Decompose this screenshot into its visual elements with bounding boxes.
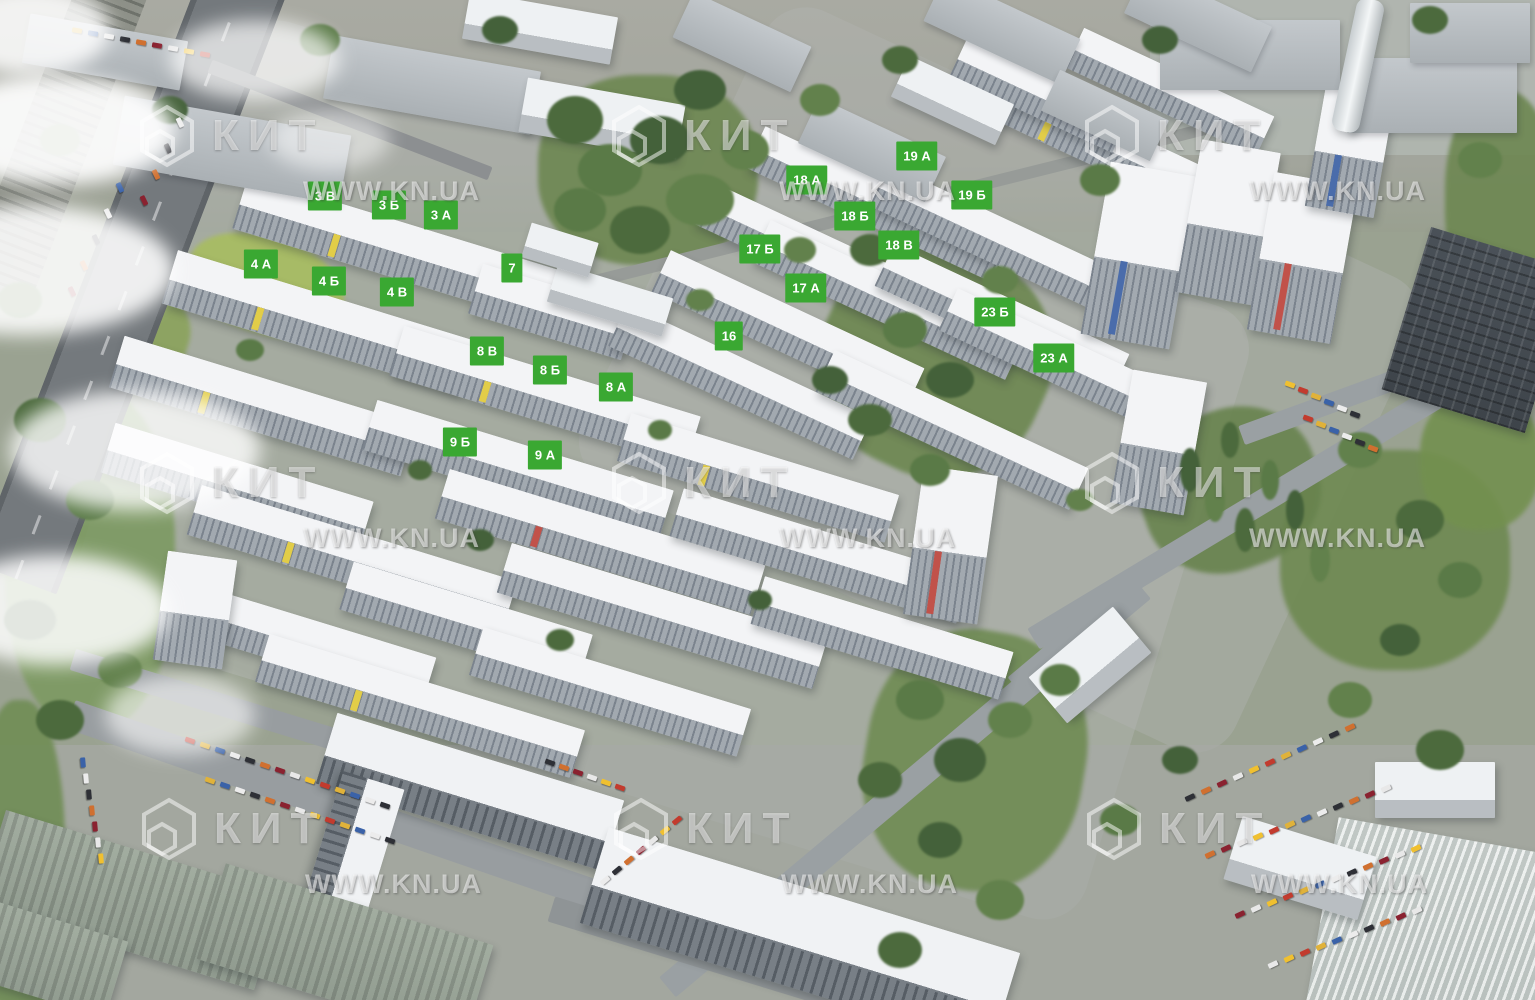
tree (882, 46, 918, 74)
tree (686, 289, 714, 311)
building-marker-8-b[interactable]: 8 Б (533, 356, 567, 385)
tree (36, 700, 84, 740)
tree (848, 404, 892, 436)
tree (630, 116, 690, 164)
tree (1180, 448, 1200, 492)
cloud (170, 20, 340, 100)
facade-accent-stripe (530, 525, 543, 548)
facade-accent-stripe (282, 541, 295, 564)
parked-car (95, 837, 101, 847)
tree (910, 454, 950, 486)
tree (1100, 804, 1140, 836)
facade-accent-stripe (925, 550, 941, 613)
parked-car (1344, 723, 1355, 732)
tree (918, 822, 962, 858)
building-marker-18-b[interactable]: 18 Б (834, 202, 875, 231)
facade-accent-stripe (1108, 260, 1128, 334)
building-marker-16[interactable]: 16 (715, 322, 743, 351)
tree (554, 188, 606, 232)
building-marker-4-a[interactable]: 4 А (244, 250, 278, 279)
building-marker-23-a[interactable]: 23 А (1033, 344, 1074, 373)
building-marker-18-a[interactable]: 18 А (786, 166, 827, 195)
building-marker-19-a[interactable]: 19 А (896, 142, 937, 171)
building-marker-7[interactable]: 7 (501, 254, 522, 283)
facade-accent-stripe (479, 380, 492, 403)
tree (1162, 746, 1198, 774)
tree (1438, 562, 1482, 598)
building-marker-9-b[interactable]: 9 Б (443, 428, 477, 457)
tree (858, 762, 902, 798)
tree (1396, 500, 1444, 540)
building-marker-17-a[interactable]: 17 А (785, 274, 826, 303)
building-marker-23-b[interactable]: 23 Б (974, 298, 1015, 327)
tree (1380, 624, 1420, 656)
tree (800, 84, 840, 116)
tree (648, 420, 672, 440)
facade-accent-stripe (1272, 263, 1291, 330)
tree (883, 312, 927, 348)
tree (1458, 142, 1502, 178)
facade-accent-stripe (251, 307, 265, 332)
tree (466, 529, 494, 551)
cloud (270, 110, 390, 170)
building-marker-3-a[interactable]: 3 А (424, 201, 458, 230)
tree (1235, 508, 1255, 552)
parked-car (80, 757, 86, 767)
parked-car (98, 853, 104, 863)
parked-car (83, 773, 89, 783)
parked-car (89, 805, 95, 815)
building-marker-9-a[interactable]: 9 А (528, 441, 562, 470)
tree (547, 96, 603, 144)
tree (934, 738, 986, 782)
building-marker-18-v[interactable]: 18 В (878, 231, 919, 260)
tree (674, 70, 726, 110)
tree (1261, 460, 1279, 500)
tree (1040, 664, 1080, 696)
parked-car (86, 789, 92, 799)
building-marker-4-v[interactable]: 4 В (380, 278, 414, 307)
warehouse (1375, 762, 1495, 818)
tree (1328, 682, 1372, 718)
tree (1310, 538, 1330, 582)
tree (1205, 478, 1225, 522)
masterplan-scene: 3 В3 Б3 А4 А4 Б4 В78 В8 Б8 А9 Б9 А1617 Б… (0, 0, 1535, 1000)
facade-accent-stripe (698, 464, 711, 486)
building-marker-17-b[interactable]: 17 Б (739, 235, 780, 264)
tree (748, 590, 772, 610)
facade-accent-stripe (327, 233, 341, 258)
cloud (10, 390, 260, 510)
building-marker-3-b[interactable]: 3 Б (372, 191, 406, 220)
building-marker-8-v[interactable]: 8 В (470, 337, 504, 366)
building-marker-4-b[interactable]: 4 Б (312, 267, 346, 296)
cloud (105, 675, 255, 755)
tree (784, 237, 816, 263)
tree (610, 206, 670, 254)
tree (926, 362, 974, 398)
building-marker-3-v[interactable]: 3 В (308, 182, 342, 211)
factory-roof (1347, 58, 1517, 133)
tree (1142, 26, 1178, 54)
tree (1080, 164, 1120, 196)
tree (236, 339, 264, 361)
tree (878, 932, 922, 968)
parked-car (1328, 730, 1339, 739)
tree (1412, 6, 1448, 34)
tree (812, 366, 848, 394)
tree (546, 629, 574, 651)
tree (408, 460, 432, 480)
facade-accent-stripe (350, 689, 363, 711)
building-marker-19-b[interactable]: 19 Б (951, 181, 992, 210)
facade-accent-stripe (1326, 154, 1342, 207)
tree (1416, 730, 1464, 770)
tree (982, 266, 1018, 294)
tree (988, 702, 1032, 738)
tree (666, 174, 734, 226)
tree (1221, 422, 1239, 458)
tree (1286, 490, 1304, 530)
tree (1066, 489, 1094, 511)
tree (482, 16, 518, 44)
building-marker-8-a[interactable]: 8 А (599, 373, 633, 402)
tree (976, 880, 1024, 920)
parked-car (92, 821, 98, 831)
tree (721, 130, 769, 170)
tree (896, 680, 944, 720)
